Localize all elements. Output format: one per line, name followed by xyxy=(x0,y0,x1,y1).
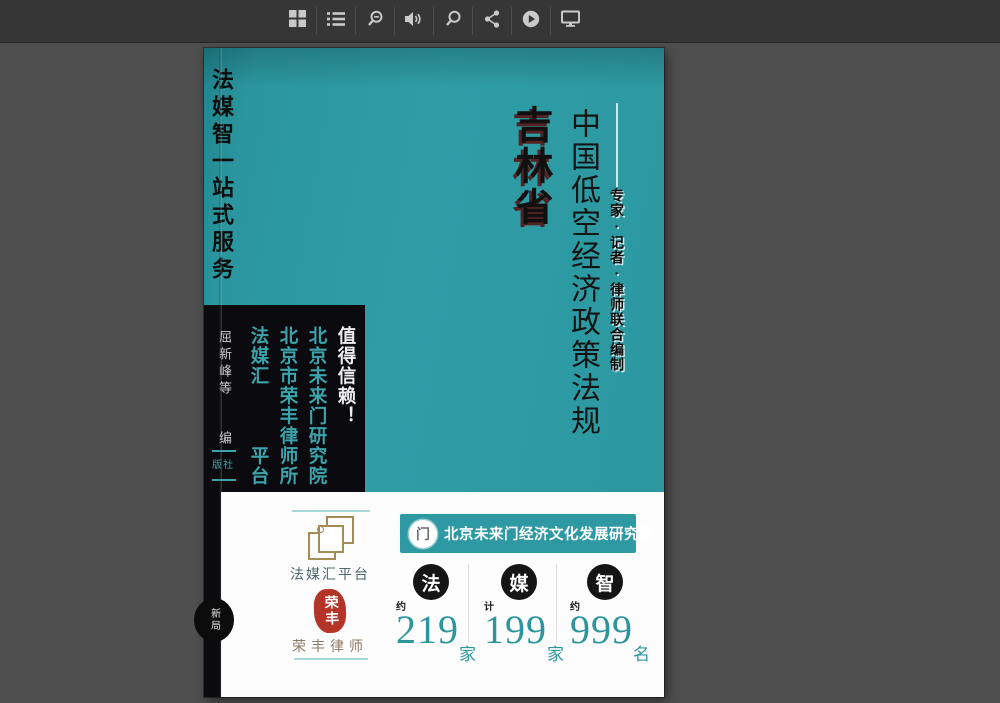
province-title: 吉林省 xyxy=(503,105,558,295)
lawyer-label: 荣丰律师 xyxy=(266,636,394,656)
monitor-icon xyxy=(561,10,580,32)
trust-platform: 法媒汇 平台 xyxy=(246,326,272,490)
footer-divider-bottom xyxy=(294,658,368,660)
sound-button[interactable] xyxy=(394,7,433,35)
rongfeng-seal: 荣丰 xyxy=(313,588,347,633)
fullscreen-button[interactable] xyxy=(550,7,589,35)
stat-wisdom-circle: 智 xyxy=(587,564,623,600)
zoom-in-icon xyxy=(444,10,462,33)
byline-text: 专家·记者·律师联合编制 xyxy=(607,188,627,420)
toolbar-buttons xyxy=(278,7,589,35)
stat-law-unit: 家 xyxy=(406,646,476,664)
famei-hui-logo xyxy=(308,516,354,562)
stat-law: 法 约 219 家 xyxy=(396,564,466,664)
play-icon xyxy=(522,10,540,33)
autoplay-button[interactable] xyxy=(511,7,550,35)
trust-columns: 值得信赖！ 北京未来门研究院 北京市荣丰律师所 法媒汇 平台 xyxy=(243,326,362,490)
institute-banner-text: 北京未来门经济文化发展研究院 xyxy=(444,523,654,544)
share-icon xyxy=(484,10,500,33)
trust-slogan: 值得信赖！ xyxy=(333,326,359,490)
stat-media-glyph: 媒 xyxy=(509,569,528,596)
thumbnail-grid-icon xyxy=(289,10,306,32)
book-cover-page[interactable]: 法媒智一站式服务 吉林省 中国低空经济政策法规 专家·记者·律师联合编制 屈新峰… xyxy=(204,48,664,697)
stat-wisdom-value: 999 xyxy=(570,614,640,646)
platform-label: 法媒汇平台 xyxy=(266,564,394,584)
trust-lawfirm: 北京市荣丰律师所 xyxy=(275,326,301,490)
spine-badge-text: 新局 xyxy=(207,608,222,632)
stat-law-circle: 法 xyxy=(413,564,449,600)
thumbnail-grid-button[interactable] xyxy=(278,7,316,35)
gate-glyph: 门 xyxy=(416,524,430,544)
stat-media-value: 199 xyxy=(484,614,554,646)
institute-logo-icon: 门 xyxy=(409,520,437,548)
zoom-out-icon xyxy=(366,10,384,33)
stat-wisdom-glyph: 智 xyxy=(595,569,614,596)
spine-badge: 新局 xyxy=(194,598,234,642)
stat-divider-1 xyxy=(468,564,469,642)
trust-box: 屈新峰等 编 版社 值得信赖！ 北京未来门研究院 北京市荣丰律师所 法媒汇 平台 xyxy=(204,305,365,492)
list-icon xyxy=(327,11,345,32)
spine-rule-bottom xyxy=(212,479,236,481)
viewer-toolbar xyxy=(0,0,1000,43)
table-of-contents-button[interactable] xyxy=(316,7,355,35)
stat-divider-2 xyxy=(556,564,557,642)
stat-wisdom: 智 约 999 名 xyxy=(570,564,640,664)
book-title: 中国低空经济政策法规 xyxy=(560,108,604,498)
trust-institute: 北京未来门研究院 xyxy=(304,326,330,490)
footer-divider-top xyxy=(292,510,370,512)
stat-media: 媒 计 199 家 xyxy=(484,564,554,664)
stat-law-value: 219 xyxy=(396,614,466,646)
share-button[interactable] xyxy=(472,7,511,35)
stat-media-unit: 家 xyxy=(494,646,564,664)
spine-rule-top xyxy=(212,450,236,452)
speaker-icon xyxy=(405,11,423,32)
seal-text: 荣丰 xyxy=(319,595,340,628)
stat-law-glyph: 法 xyxy=(421,569,440,596)
byline-rule xyxy=(616,103,618,187)
stat-media-circle: 媒 xyxy=(501,564,537,600)
institute-banner: 门 北京未来门经济文化发展研究院 xyxy=(400,514,636,553)
publisher-partial: 版社 xyxy=(212,456,234,471)
zoom-in-button[interactable] xyxy=(433,7,472,35)
stat-wisdom-unit: 名 xyxy=(580,646,650,664)
zoom-out-button[interactable] xyxy=(355,7,394,35)
ebook-viewer: 法媒智一站式服务 吉林省 中国低空经济政策法规 专家·记者·律师联合编制 屈新峰… xyxy=(0,0,1000,703)
